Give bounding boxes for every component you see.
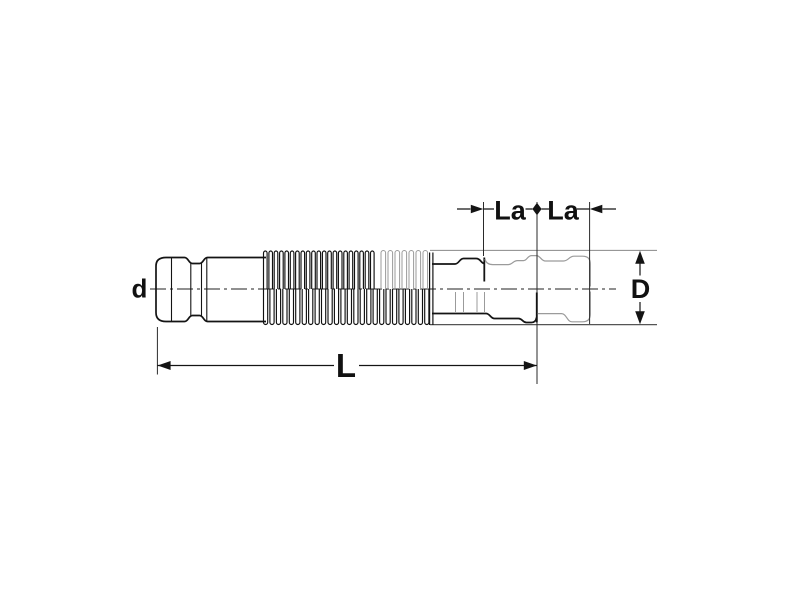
label-la-right: La xyxy=(547,196,579,226)
expansion-joint-diagram: La La L D d xyxy=(0,0,800,600)
d-arrow-up xyxy=(635,251,645,264)
label-la-left: La xyxy=(494,196,526,226)
phantom-top-profile xyxy=(485,256,590,287)
dimension-la: La La xyxy=(457,196,616,385)
socket-bottom-profile xyxy=(166,316,266,322)
phantom-bead-lines xyxy=(456,292,485,312)
label-pipe-diameter: d xyxy=(132,274,148,304)
bellows-corrugation-extended-top-crests-phantom xyxy=(381,250,428,289)
la-arrow-right xyxy=(590,205,603,214)
compressed-top-profile xyxy=(432,259,484,265)
bellows-corrugation-compressed-top-crests xyxy=(264,251,375,289)
technical-drawing-canvas: La La L D d xyxy=(0,0,800,600)
la-middle-diamond xyxy=(532,203,541,215)
label-outer-diameter: D xyxy=(631,274,651,304)
bellows-section xyxy=(264,250,429,324)
neutral-bottom-profile xyxy=(432,314,537,323)
d-arrow-down xyxy=(635,311,645,324)
socket-top-profile xyxy=(166,258,266,264)
l-arrow-left xyxy=(158,361,171,370)
phantom-bottom-profile xyxy=(538,292,591,322)
l-arrow-right xyxy=(524,361,537,370)
bellows-corrugation-neutral-bottom-crests xyxy=(264,289,429,324)
dimension-l: L xyxy=(157,327,536,384)
dimension-d: D xyxy=(631,251,651,324)
label-pipe-diameter-group: d xyxy=(132,274,148,304)
la-arrow-left xyxy=(471,205,484,214)
label-l: L xyxy=(336,347,356,384)
